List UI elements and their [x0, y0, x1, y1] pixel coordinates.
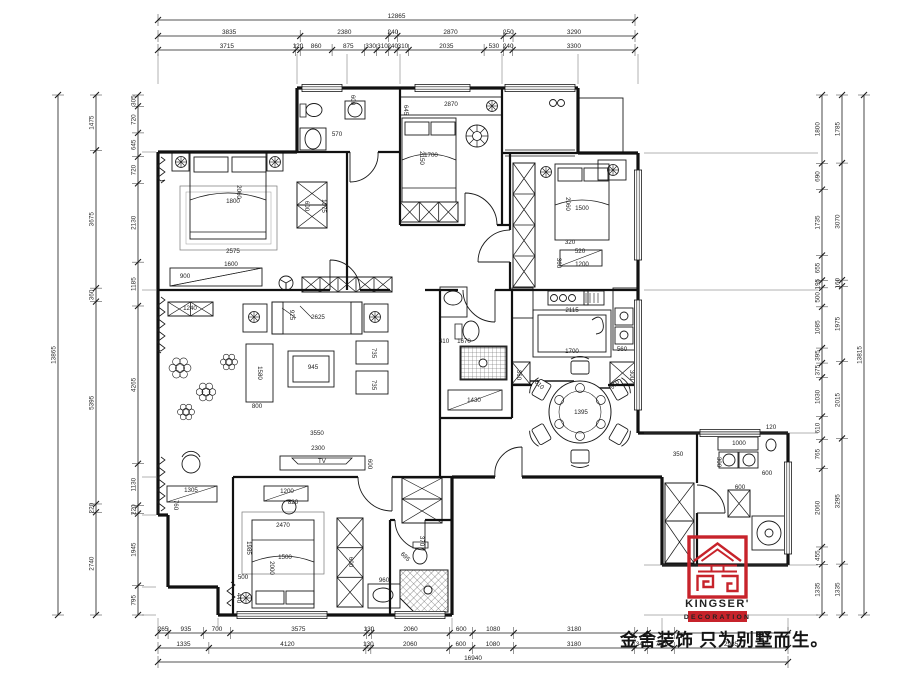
window — [237, 611, 327, 618]
dimension-label: 2060 — [403, 641, 418, 648]
dimension-label: 720 — [131, 114, 138, 125]
dimension-label: 1475 — [89, 115, 96, 130]
dining-chair — [571, 361, 589, 374]
dimension-label: 13865 — [51, 346, 58, 364]
plan-annotation: 1500 — [278, 554, 292, 561]
slogan-text: 金舍装饰 只为别墅而生。 — [619, 630, 829, 650]
dimension-label: 455 — [815, 550, 822, 561]
dimension-label: 395 — [815, 350, 822, 361]
plan-annotation: 925 — [288, 310, 295, 321]
plan-annotation: 1305 — [184, 487, 198, 494]
dimension-label: 500 — [815, 292, 822, 303]
dimension-label: 795 — [131, 595, 138, 606]
window — [302, 84, 342, 91]
dimension-label: 265 — [158, 626, 169, 633]
plan-annotation: 360 — [555, 258, 562, 269]
plan-annotation: 300 — [715, 457, 722, 468]
dimension-label: 13815 — [857, 346, 864, 364]
dimension-label: 1335 — [176, 641, 191, 648]
plan-annotation: 2115 — [565, 307, 579, 314]
plan-annotation: 350 — [673, 451, 684, 458]
dimension-label: 220 — [89, 502, 96, 513]
dimension-label: 2740 — [89, 556, 96, 571]
plan-annotation: 2150 — [418, 151, 425, 165]
dimension-label: 860 — [311, 43, 322, 50]
dimension-label: 530 — [489, 43, 500, 50]
plan-annotation: 1700 — [424, 152, 438, 159]
dimension-label: 1975 — [835, 316, 842, 331]
dimension-label: 3715 — [220, 43, 235, 50]
dimension-label: 220 — [131, 504, 138, 515]
dimension-label: 16940 — [464, 655, 482, 662]
dimension-label: 600 — [455, 641, 466, 648]
dimension-label: 690 — [815, 171, 822, 182]
window — [415, 84, 470, 91]
dimension-label: 3300 — [567, 43, 582, 50]
dimension-label: 610 — [815, 422, 822, 433]
dimension-label: 305 — [131, 95, 138, 106]
dining-chair — [571, 450, 589, 463]
plan-annotation: 360 — [515, 370, 522, 381]
dimension-label: 3290 — [567, 29, 582, 36]
plan-annotation: 600 — [762, 470, 773, 477]
dimension-label: 1085 — [815, 320, 822, 335]
plan-annotation: 1200 — [575, 261, 589, 268]
plan-annotation: 2470 — [276, 522, 290, 529]
kingser-brand-text: KINGSER' — [685, 598, 750, 610]
dimension-label: 1080 — [486, 626, 501, 633]
dimension-label: 1335 — [815, 582, 822, 597]
plan-annotation: 500 — [238, 574, 249, 581]
plan-annotation: 1075 — [320, 199, 327, 213]
dimension-label: 195 — [815, 278, 822, 289]
dimension-label: 935 — [181, 626, 192, 633]
plan-annotation: 370 — [418, 536, 425, 547]
dimension-label: 3675 — [89, 212, 96, 227]
dimension-label: 1080 — [486, 641, 501, 648]
plan-annotation: 1200 — [280, 488, 294, 495]
dimension-label: 130 — [363, 641, 374, 648]
plan-annotation: 945 — [308, 364, 319, 371]
dimension-label: 1785 — [835, 121, 842, 136]
plan-annotation: 960 — [379, 577, 390, 584]
plan-annotation: 735 — [370, 348, 377, 359]
plan-annotation: 600 — [735, 484, 746, 491]
dimension-label: 2060 — [403, 626, 418, 633]
dimension-label: 240 — [388, 29, 399, 36]
plan-annotation: 2300 — [311, 445, 325, 452]
floorplan-canvas: 1286538352380240287025032903715120860875… — [0, 0, 900, 675]
plan-annotation: 645 — [402, 105, 409, 116]
plan-annotation: 520 — [575, 248, 586, 255]
plan-annotation: 570 — [332, 131, 343, 138]
dimension-label: 2060 — [815, 500, 822, 515]
plan-annotation: 900 — [180, 273, 191, 280]
dimension-label: 3295 — [835, 494, 842, 509]
plan-annotation: 600 — [347, 557, 354, 568]
plan-annotation: 1600 — [224, 261, 238, 268]
kingser-sub-text: DECORATION — [684, 614, 751, 621]
dimension-label: 160 — [835, 277, 842, 288]
window — [395, 611, 445, 618]
dimension-label: 3070 — [835, 214, 842, 229]
dimension-label: 3180 — [567, 641, 582, 648]
plan-annotation: 1700 — [565, 348, 579, 355]
dimension-label: 250 — [503, 29, 514, 36]
dimension-label: 1335 — [835, 582, 842, 597]
window — [505, 84, 575, 91]
dimension-label: 1945 — [131, 542, 138, 557]
plan-annotation: 1985 — [245, 541, 252, 555]
shower-drain — [424, 586, 432, 594]
plan-annotation: 2625 — [311, 314, 325, 321]
plan-annotation: 1000 — [732, 440, 746, 447]
shower-drain — [479, 359, 487, 367]
dimension-label: 375 — [815, 364, 822, 375]
plan-annotation: 300 — [628, 370, 635, 381]
plan-annotation: 1395 — [574, 409, 588, 416]
plan-annotation: 1800 — [226, 198, 240, 205]
window — [784, 462, 791, 554]
dimension-label: 3575 — [291, 626, 306, 633]
plan-annotation: 800 — [252, 403, 263, 410]
plan-annotation: 1580 — [256, 366, 263, 380]
dimension-label: 1130 — [131, 477, 138, 491]
dimension-label: 310 — [398, 43, 409, 50]
plan-annotation: 440 — [235, 593, 242, 604]
dimension-label: 720 — [131, 164, 138, 175]
dimension-label: 4265 — [131, 377, 138, 392]
dimension-label: 2380 — [337, 29, 352, 36]
plan-annotation: 2000 — [268, 561, 275, 575]
window — [634, 300, 641, 410]
dimension-label: 600 — [456, 626, 467, 633]
dimension-label: 4120 — [280, 641, 295, 648]
dimension-label: 2015 — [835, 392, 842, 407]
plan-annotation: 2575 — [226, 248, 240, 255]
plan-annotation: TV — [318, 458, 327, 465]
dimension-label: 2035 — [439, 43, 454, 50]
plan-annotation: 820 — [288, 499, 299, 506]
dimension-label: 120 — [293, 43, 304, 50]
dimension-label: 3835 — [222, 29, 237, 36]
plan-annotation: 2870 — [444, 101, 458, 108]
plan-annotation: 735 — [370, 380, 377, 391]
dimension-label: 130 — [364, 626, 375, 633]
plan-annotation: 1430 — [467, 397, 481, 404]
dimension-label: 1185 — [131, 277, 138, 291]
dimension-label: 330 — [365, 43, 376, 50]
plan-annotation: 320 — [565, 239, 576, 246]
dimension-label: 3180 — [567, 626, 582, 633]
plan-annotation: 600 — [303, 201, 310, 212]
dimension-label: 645 — [131, 139, 138, 150]
dimension-label: 360 — [89, 289, 96, 300]
dimension-label: 12865 — [388, 13, 406, 20]
dimension-label: 1030 — [815, 389, 822, 404]
plan-annotation: 3550 — [310, 430, 324, 437]
plan-annotation: 760 — [172, 500, 179, 511]
plan-annotation: 120 — [766, 424, 777, 431]
plan-annotation: 410 — [439, 338, 450, 345]
plan-annotation: 1670 — [457, 338, 471, 345]
window — [634, 170, 641, 260]
dimension-label: 2870 — [443, 29, 458, 36]
plan-annotation: 600 — [366, 459, 373, 470]
dimension-label: 240 — [503, 43, 514, 50]
dimension-label: 1735 — [815, 215, 822, 230]
dimension-label: 700 — [212, 626, 223, 633]
floorplan-drawing: 1286538352380240287025032903715120860875… — [0, 0, 900, 675]
dimension-label: 2130 — [131, 215, 138, 230]
dimension-label: 655 — [815, 262, 822, 273]
dimension-label: 1800 — [815, 122, 822, 137]
plan-annotation: 2060 — [564, 197, 571, 211]
dimension-label: 765 — [815, 448, 822, 459]
dimension-label: 5395 — [89, 395, 96, 410]
plan-annotation: 1500 — [575, 205, 589, 212]
dimension-label: 875 — [343, 43, 354, 50]
plan-annotation: 1240 — [183, 305, 197, 312]
plan-annotation: 600 — [349, 95, 356, 106]
plan-annotation: 560 — [617, 346, 628, 353]
